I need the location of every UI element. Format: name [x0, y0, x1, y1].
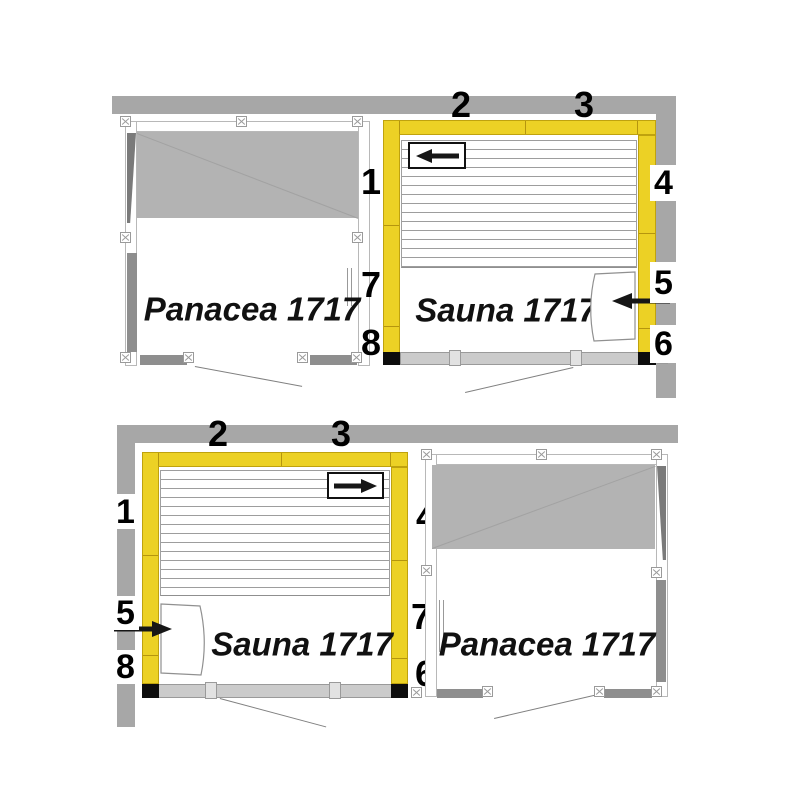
corner-connector-icon: [352, 116, 363, 127]
corner-connector-icon: [120, 232, 131, 243]
arrow-left-icon: [415, 148, 459, 164]
sauna-frame-right: [391, 467, 408, 684]
corner-connector-icon: [594, 686, 605, 697]
panel-number-2: 2: [451, 87, 471, 123]
corner-connector-icon: [651, 686, 662, 697]
corner-connector-icon: [482, 686, 493, 697]
frame-joint: [143, 655, 158, 656]
panel-number-6: 6: [650, 325, 677, 363]
panacea-room-label: Panacea 1717: [439, 628, 656, 661]
frame-joint: [392, 560, 407, 561]
panacea-wall-segment-bottom-right: [604, 689, 652, 698]
arrow-right-icon: [334, 478, 378, 494]
sauna-frame-left: [142, 452, 159, 684]
frame-joint: [281, 453, 282, 466]
panel-number-1: 1: [361, 164, 381, 200]
panel-number-4: 4: [650, 165, 677, 201]
panacea-wall-segment-right: [656, 580, 666, 682]
frame-joint: [639, 233, 655, 234]
panacea-wall-segment-bottom-left: [437, 689, 483, 698]
building-wall-top: [117, 425, 678, 443]
panacea-door-swing-line: [494, 694, 598, 719]
panel-number-text: 8: [116, 650, 135, 684]
sauna-door-swing-line: [465, 367, 573, 393]
frame-joint: [399, 121, 400, 134]
sauna-front-wall-strip: [400, 352, 639, 365]
frame-joint: [143, 555, 158, 556]
panel-number-3: 3: [331, 416, 351, 452]
sauna-corner-block: [383, 352, 400, 365]
sauna-room-label: Sauna 1717: [211, 628, 393, 661]
diagram-top: 2 3 Panacea 1717 1 7 8: [0, 0, 800, 400]
direction-indicator: [327, 472, 384, 499]
corner-connector-icon: [651, 449, 662, 460]
panel-number-1: 1: [112, 494, 139, 529]
corner-connector-icon: [421, 449, 432, 460]
frame-joint: [384, 225, 399, 226]
panel-number-text: 1: [116, 495, 135, 529]
panacea-wall-segment-bottom-right: [310, 355, 357, 365]
sauna-frame-top: [383, 120, 656, 135]
door-post: [205, 682, 217, 699]
panel-number-3: 3: [574, 87, 594, 123]
panacea-wall-segment-left: [127, 253, 137, 352]
panel-number-2: 2: [208, 416, 228, 452]
door-post: [329, 682, 341, 699]
frame-joint: [392, 658, 407, 659]
panel-number-5: 5: [650, 262, 677, 303]
sauna-door-leaf: [160, 600, 210, 680]
direction-indicator: [408, 142, 466, 169]
panacea-wall-segment-bottom-left: [140, 355, 187, 365]
frame-joint: [384, 326, 399, 327]
panacea-frame-top: [125, 121, 370, 132]
sauna-frame-left: [383, 120, 400, 353]
corner-connector-icon: [120, 352, 131, 363]
sauna-corner-block: [391, 684, 408, 698]
panel-number-text: 5: [654, 266, 673, 300]
panel-number-text: 5: [116, 596, 135, 630]
sauna-frame-top: [142, 452, 408, 467]
sauna-door-swing-line: [220, 698, 327, 727]
panel-number-5: 5: [112, 596, 139, 630]
corner-connector-icon: [651, 567, 662, 578]
panel-number-7: 7: [361, 267, 381, 303]
corner-connector-icon: [120, 116, 131, 127]
panel-number-text: 4: [654, 166, 673, 200]
corner-connector-icon: [297, 352, 308, 363]
frame-joint: [390, 453, 391, 466]
panel-number-8: 8: [112, 650, 139, 684]
diagram-bottom: 2 3 Sauna 1717: [0, 400, 800, 800]
panel-number-text: 6: [654, 327, 673, 361]
corner-connector-icon: [236, 116, 247, 127]
panacea-room-label: Panacea 1717: [144, 293, 361, 326]
door-post: [570, 350, 582, 366]
frame-joint: [525, 121, 526, 134]
panacea-door-swing-line: [195, 366, 302, 387]
installation-diagram-canvas: 2 3 Panacea 1717 1 7 8: [0, 0, 800, 800]
corner-connector-icon: [352, 232, 363, 243]
frame-joint: [158, 453, 159, 466]
sauna-room-label: Sauna 1717: [415, 294, 597, 327]
corner-connector-icon: [421, 565, 432, 576]
sauna-corner-block: [142, 684, 159, 698]
panel-number-8: 8: [361, 325, 381, 361]
corner-connector-icon: [183, 352, 194, 363]
sauna-front-wall-strip: [157, 684, 393, 698]
door-post: [449, 350, 461, 366]
frame-joint: [637, 121, 638, 134]
corner-connector-icon: [536, 449, 547, 460]
